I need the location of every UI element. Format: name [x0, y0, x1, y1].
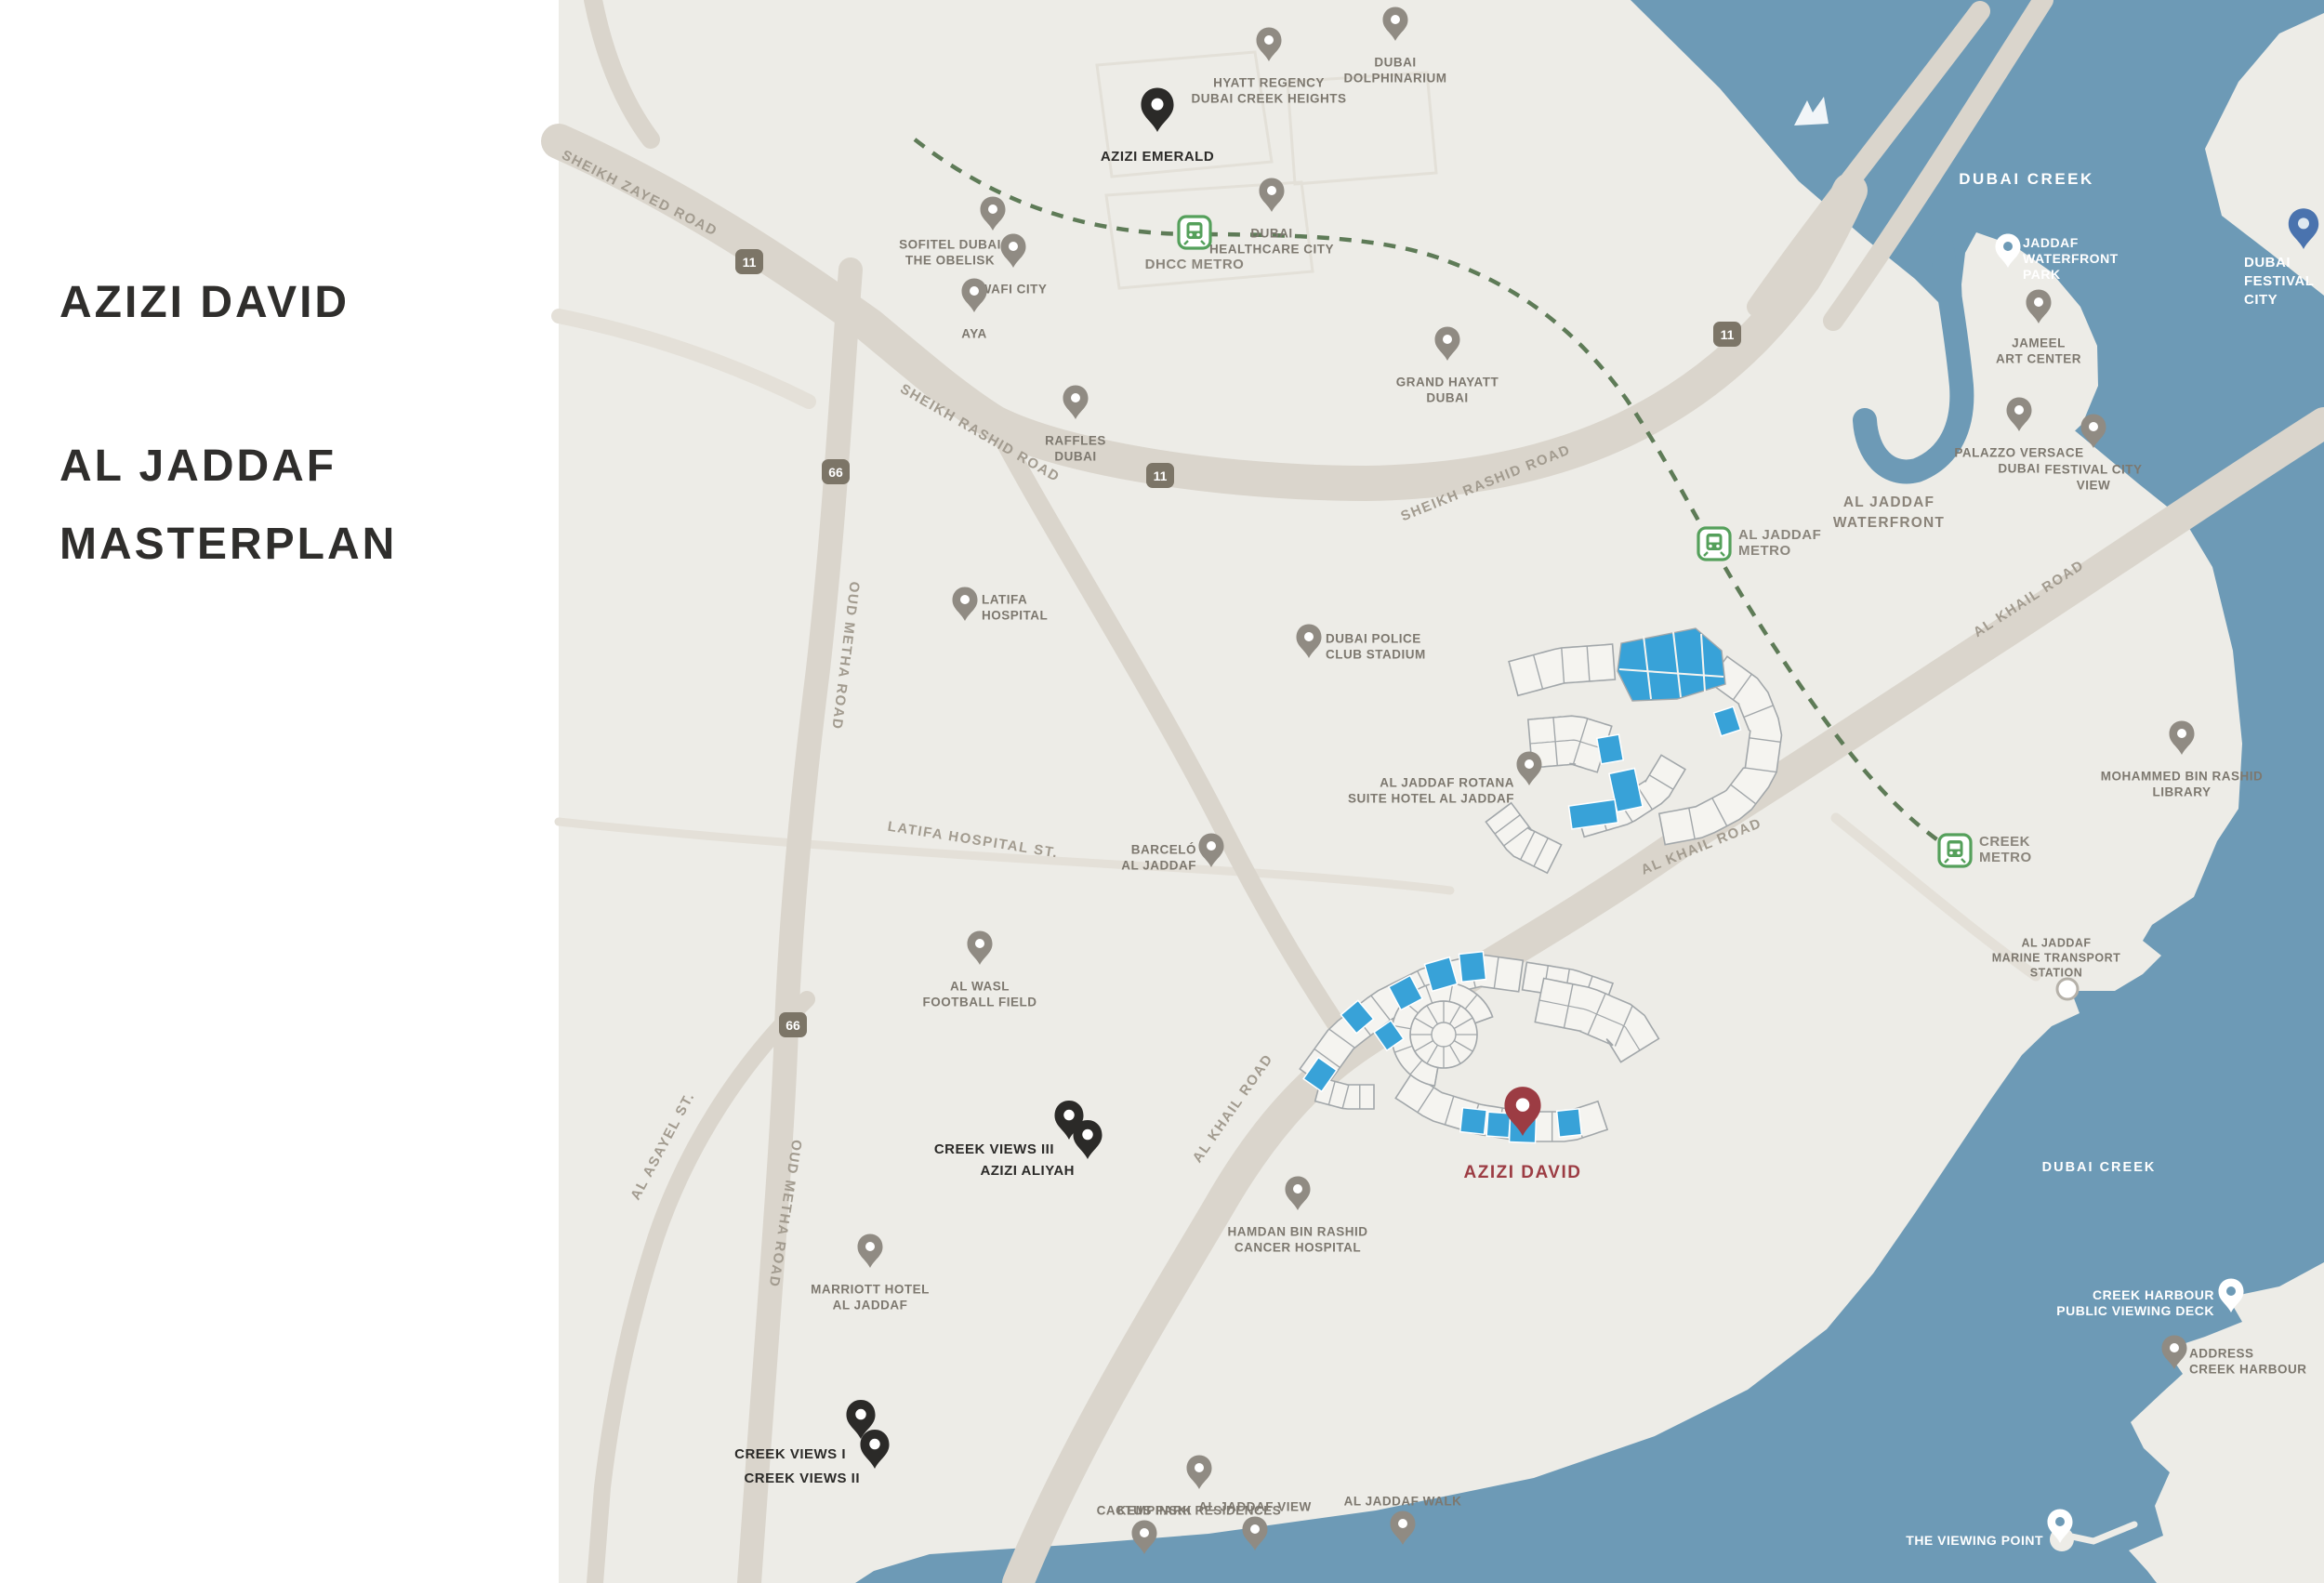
svg-text:11: 11: [1721, 327, 1735, 342]
route-shield-66: 66: [779, 1012, 807, 1037]
aya-label: AYA: [961, 327, 987, 341]
azizi-david-label: AZIZI DAVID: [1464, 1163, 1582, 1182]
creek-metro-marker: [1939, 835, 1971, 866]
al-jaddaf-marine-transport-station-marker: [2057, 979, 2078, 999]
station-dot-icon: [2057, 979, 2078, 999]
creek-metro-label: CREEKMETRO: [1979, 834, 2032, 865]
route-shield-11: 11: [735, 249, 763, 274]
dhcc-metro-marker: [1179, 217, 1210, 248]
creek-views-i-label: CREEK VIEWS I: [734, 1446, 846, 1462]
svg-text:66: 66: [786, 1018, 800, 1033]
azizi-emerald-label: AZIZI EMERALD: [1101, 149, 1214, 165]
azizi-aliyah-label: AZIZI ALIYAH: [980, 1163, 1075, 1179]
wafi-city-label: WAFI CITY: [980, 283, 1048, 297]
creek-views-iii-label: CREEK VIEWS III: [934, 1141, 1054, 1157]
cactus-park-label: CACTUS PARK: [1097, 1504, 1193, 1518]
route-shield-66: 66: [822, 459, 850, 484]
al-jaddaf-metro-marker: [1698, 528, 1730, 560]
svg-text:11: 11: [1154, 468, 1168, 483]
masterplan-page: AZIZI DAVID AL JADDAF MASTERPLAN 1111116…: [0, 0, 2324, 1583]
route-shield-11: 11: [1713, 322, 1741, 347]
al-jaddaf-view-label: AL JADDAF VIEW: [1198, 1500, 1312, 1514]
al-jaddaf-masterplan-map: 1111116666SHEIKH ZAYED ROADSHEIKH RASHID…: [0, 0, 2324, 1583]
svg-text:11: 11: [743, 255, 757, 270]
creek-views-ii-label: CREEK VIEWS II: [744, 1471, 860, 1486]
the-viewing-point-label: THE VIEWING POINT: [1906, 1533, 2043, 1548]
dubai-creek-south-label: DUBAI CREEK: [2042, 1160, 2157, 1175]
al-jaddaf-walk-label: AL JADDAF WALK: [1344, 1495, 1462, 1509]
svg-text:66: 66: [828, 465, 843, 480]
dhcc-metro-label: DHCC METRO: [1145, 257, 1245, 272]
dubai-creek-north-label: DUBAI CREEK: [1959, 170, 2094, 188]
route-shield-11: 11: [1146, 463, 1174, 488]
